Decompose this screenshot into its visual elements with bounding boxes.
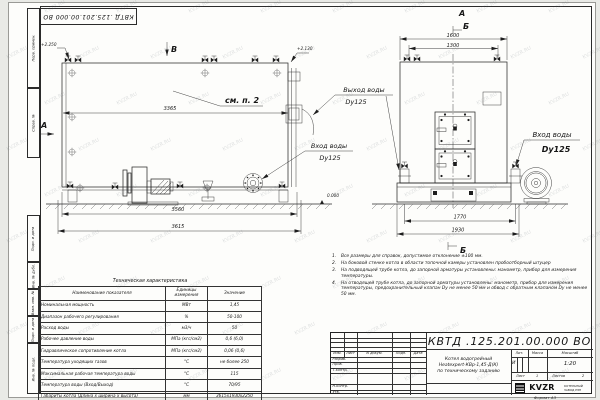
- section-marker-a: А: [458, 9, 465, 18]
- doc-number: КВТД .125.201.00.000 ВО: [426, 333, 593, 349]
- dim-3560: 3560: [172, 207, 185, 213]
- margin-cell-podp-data-1: Подп. и дата: [27, 215, 40, 262]
- sheet-label: Лист: [516, 375, 525, 379]
- top-left-rotated-stamp: КВТД .125.201.00.000 ВО: [40, 8, 137, 25]
- col-header-units: Единицы измерения: [166, 287, 208, 301]
- sheet-value: 1: [536, 375, 538, 379]
- outlet-dn-label: Dy125: [345, 98, 366, 106]
- rev-header-podp: Подп.: [392, 352, 410, 356]
- note-3: 3.На подводящей трубе котла, до запорной…: [332, 268, 590, 279]
- side-view: 3365 см. п. 2 +2.250 +2.130: [40, 42, 339, 234]
- dim-3365: 3365: [164, 106, 177, 112]
- drain-funnel: [202, 181, 214, 201]
- table-row: Рабочее давление водыМПа (кгс/см2)0,6 (6…: [39, 334, 262, 345]
- dim-3615: 3615: [172, 224, 185, 230]
- format-label: Формат А3: [505, 395, 585, 400]
- outlet-label: Выход воды: [343, 86, 384, 94]
- boiler-body-side: [62, 63, 288, 187]
- water-inlet-flange: [244, 174, 263, 193]
- upper-door: [435, 112, 475, 149]
- table-row: Диапазон рабочего регулирования%50-100: [39, 311, 262, 322]
- notes-block: 1.Все размеры для справок, допустимое от…: [332, 254, 590, 299]
- blower-fan: [521, 168, 552, 205]
- note-4: 4.На отводящей трубе котла, до запорной …: [332, 281, 590, 298]
- inlet-mid-dn-label: Dy125: [319, 154, 340, 162]
- dim-1930: 1930: [452, 228, 465, 234]
- sheets-label: Листов: [552, 375, 565, 379]
- inlet-right-label: Вход воды: [532, 131, 572, 139]
- table-row: Температура уходящих газов°Сне более 250: [39, 357, 262, 368]
- scale-label: Масштаб: [547, 352, 593, 356]
- sign-row-prov: Пров.: [333, 363, 343, 367]
- table-header-row: Наименование показателя Единицы измерени…: [39, 287, 262, 301]
- margin-cell-inv-dubl: Инв. № дубл.: [27, 262, 40, 289]
- table-row: Номинальная мощностьМВт1,45: [39, 300, 262, 311]
- scale-value: 1:20: [547, 362, 593, 368]
- table-row: Расход водым3/ч50: [39, 323, 262, 334]
- base-skid: [397, 183, 511, 202]
- sign-row-nkontr: Н.контр.: [333, 385, 349, 389]
- mass-label: Масса: [528, 352, 547, 356]
- kvzr-logo-icon: [515, 383, 525, 393]
- rev-header-data: Дата: [410, 352, 426, 356]
- margin-cell-sprav-no: Справ. №: [27, 88, 40, 158]
- margin-cell-perv-primen: Перв. примен.: [27, 8, 40, 88]
- table-row: Габариты котла (Длина х ширина х высота)…: [39, 391, 262, 400]
- dim-1600: 1600: [447, 33, 460, 39]
- elevation-zero: 0.000: [327, 193, 339, 198]
- pump-motor-unit: [62, 167, 288, 205]
- inlet-right-dn-label: Dy125: [542, 145, 571, 154]
- doc-description: Котел водогрейный Heatexpert-КВр-1,45-Д(…: [426, 349, 511, 383]
- note-1: 1.Все размеры для справок, допустимое от…: [332, 254, 590, 260]
- view-marker-b-top: В: [171, 45, 177, 54]
- ground-hatch-right: [372, 204, 566, 209]
- pipe-labels: Выход воды Dy125 Вход воды Dy125 Вход во…: [261, 86, 580, 180]
- rev-header-ndokum: N докум.: [357, 352, 392, 356]
- drawing-sheet-page: КВТД .125.201.00.000 ВО Перв. примен. Сп…: [0, 0, 600, 400]
- elevation-2130: +2.130: [297, 46, 313, 51]
- kvzr-logo-text: KVZR: [527, 382, 557, 393]
- inlet-mid-label: Вход воды: [311, 142, 347, 150]
- section-marker-b: Б: [463, 22, 469, 31]
- sign-row-utv: Утв.: [333, 391, 340, 395]
- title-block: Изм. Лист N докум. Подп. Дата Разраб. Пр…: [330, 332, 592, 394]
- ground-hatch-left: [46, 204, 330, 209]
- table-row: Температура воды (Вход/Выход)°С70/95: [39, 380, 262, 391]
- table-title: Техническая характеристика: [38, 279, 262, 284]
- sign-row-razrab: Разраб.: [333, 358, 347, 362]
- inlet-pipe-front: [509, 162, 522, 183]
- inspection-hatch: [483, 92, 501, 105]
- table-row: Гидравлическое сопротивление котлаМПа (к…: [39, 346, 262, 357]
- callout-see-item-2: см. п. 2: [225, 96, 259, 105]
- dim-1770: 1770: [454, 215, 467, 221]
- col-header-name: Наименование показателя: [39, 287, 166, 301]
- dim-1300: 1300: [447, 43, 460, 49]
- view-marker-a-left: А: [40, 121, 47, 130]
- technical-characteristics-table: Наименование показателя Единицы измерени…: [38, 286, 262, 400]
- table-row: Максимальная рабочая температура воды°С1…: [39, 368, 262, 379]
- rev-header-izm: Изм.: [331, 352, 344, 356]
- note-2: 2.На боковой стенке котла в области топо…: [332, 261, 590, 267]
- company-name: КОТЕЛЬНЫЙ ЗАВОД РЭП: [564, 384, 592, 392]
- roof-air-valve-icons: [65, 56, 279, 62]
- lit-label: Лит.: [511, 352, 528, 356]
- elevation-2250: +2.250: [41, 42, 57, 47]
- rev-header-list: Лист: [344, 352, 357, 356]
- lower-door: [435, 149, 475, 183]
- stamp-doc-number: КВТД .125.201.00.000 ВО: [43, 13, 134, 20]
- sign-row-tkontr: Т.контр.: [333, 369, 348, 373]
- col-header-value: Значение: [207, 287, 261, 301]
- sheets-value: 2: [582, 375, 584, 379]
- lit-value: И: [511, 362, 517, 367]
- flue-duct: [286, 68, 314, 187]
